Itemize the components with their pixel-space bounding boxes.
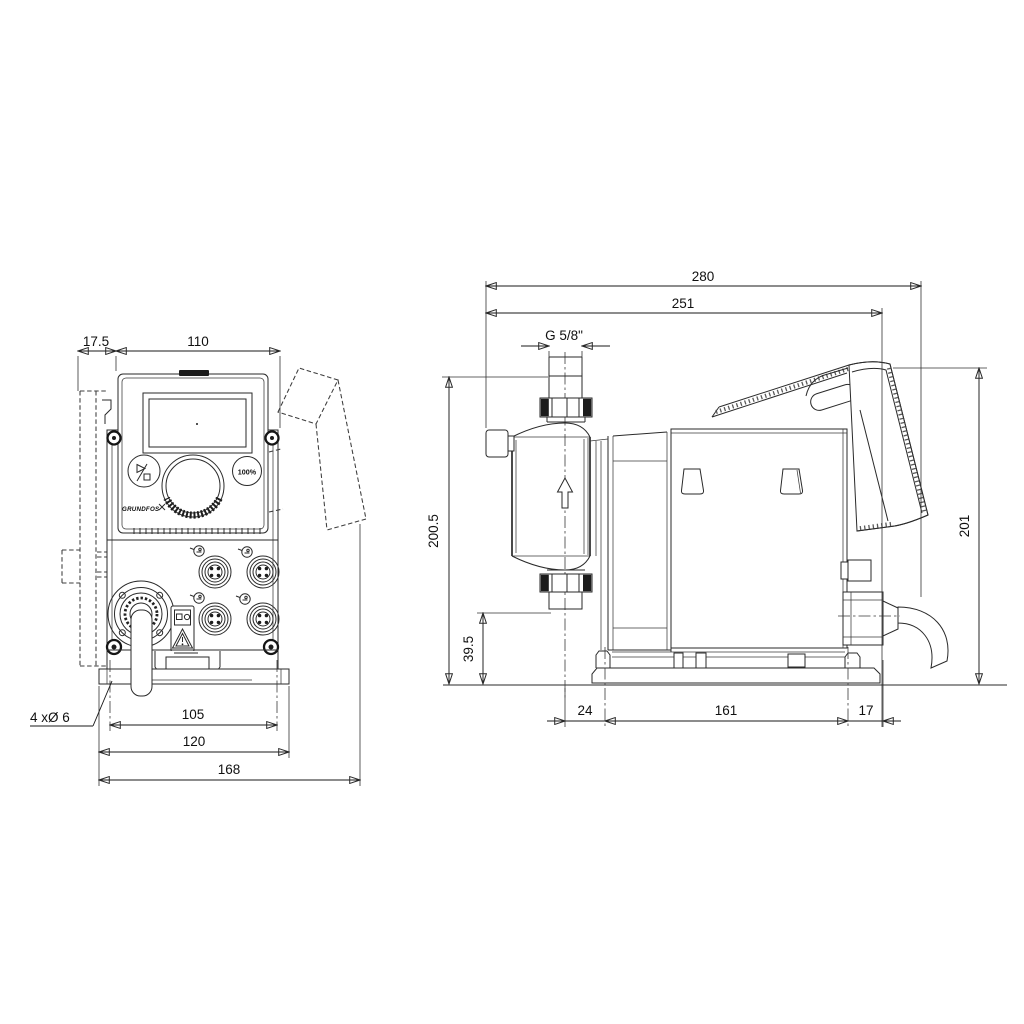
hole-note-leader: 4 xØ 6 xyxy=(30,681,112,726)
capacity-button[interactable]: 100% xyxy=(233,457,262,486)
enclosure xyxy=(590,429,847,652)
panel-top-tab xyxy=(179,370,209,376)
technical-drawing: 100% GRUNDFOS xyxy=(0,0,1024,1024)
dim-overall-length: 280 xyxy=(692,269,715,284)
dim-plate-length: 161 xyxy=(715,703,738,718)
drain-tube xyxy=(131,610,152,696)
dim-plate-width: 120 xyxy=(183,734,206,749)
wall-bracket xyxy=(62,391,111,666)
outlet-connector xyxy=(540,570,592,609)
caution-label xyxy=(171,606,194,652)
dim-hole-spacing: 105 xyxy=(182,707,205,722)
drawing-page: 100% GRUNDFOS xyxy=(0,0,1024,1024)
dim-bracket-offset: 17.5 xyxy=(83,334,109,349)
head-cylinder xyxy=(512,437,590,556)
phantom-control-cube xyxy=(269,368,366,530)
hole-note: 4 xØ 6 xyxy=(30,710,70,725)
dim-panel-width: 110 xyxy=(187,334,209,349)
flow-arrow-icon xyxy=(558,478,573,508)
cable-assembly xyxy=(838,560,948,668)
dim-connection-thread: G 5/8" xyxy=(545,328,583,343)
cable-gland xyxy=(848,560,871,581)
dim-head-to-plate: 24 xyxy=(577,703,593,718)
dim-outlet-height: 39.5 xyxy=(461,636,476,662)
brand-logo-text: GRUNDFOS xyxy=(122,506,160,513)
dim-length-to-plate: 251 xyxy=(672,296,695,311)
front-view: 100% GRUNDFOS xyxy=(30,334,366,786)
dim-overall-width: 168 xyxy=(218,762,241,777)
control-panel: 100% GRUNDFOS xyxy=(107,370,279,540)
capacity-button-label: 100% xyxy=(238,468,257,477)
vent-valve-knob[interactable] xyxy=(486,430,514,457)
start-stop-button[interactable] xyxy=(128,455,160,487)
dim-connection-height: 200.5 xyxy=(426,514,441,548)
dim-overall-height: 201 xyxy=(957,515,972,538)
side-base-plate xyxy=(592,651,880,683)
side-view: 280 251 G 5/8" 200.5 39.5 201 24 161 17 xyxy=(426,269,1007,727)
front-base-plate xyxy=(99,669,289,684)
display-screen xyxy=(143,393,252,453)
bracket-hook xyxy=(102,400,111,424)
dosing-head xyxy=(486,352,592,700)
cube-end-fill xyxy=(849,362,928,531)
click-wheel-knob[interactable] xyxy=(162,455,224,517)
mains-cable xyxy=(898,607,948,668)
inlet-connector xyxy=(540,357,592,422)
dim-plate-to-rear: 17 xyxy=(858,703,873,718)
brand-logo: GRUNDFOS xyxy=(122,504,165,513)
